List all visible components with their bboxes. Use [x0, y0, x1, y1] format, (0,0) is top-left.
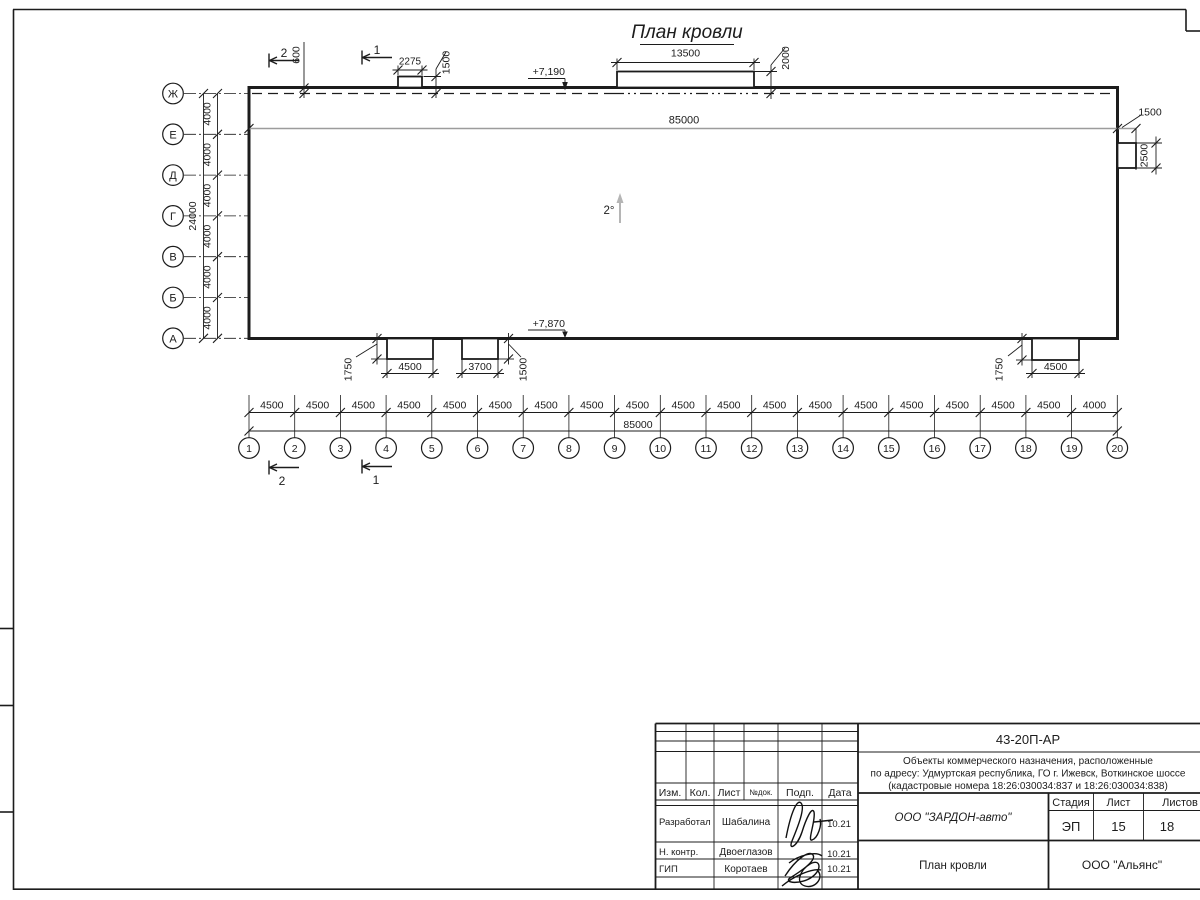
signature-developed — [786, 802, 833, 846]
column-step-dim-label: 4500 — [900, 400, 924, 412]
elevation-bottom: +7,870 — [528, 318, 568, 338]
row-step-dim-label: 4000 — [202, 102, 214, 126]
col-header-izm: Изм. — [659, 787, 682, 799]
column-step-dim-label: 4500 — [717, 400, 741, 412]
column-axis-label: 14 — [837, 443, 849, 455]
column-axis-label: 18 — [1020, 443, 1032, 455]
column-axis-label: 12 — [746, 443, 758, 455]
building: 85000 — [245, 88, 1137, 339]
row-axis-label: А — [169, 333, 177, 345]
section-1-top-label: 1 — [374, 43, 381, 57]
doc-number: 43-20П-АР — [996, 732, 1060, 747]
project-description-line1: Объекты коммерческого назначения, распол… — [903, 755, 1153, 767]
dim-inner-85000: 85000 — [669, 115, 700, 127]
row-axis-label: Д — [169, 170, 177, 182]
row-step-dim-label: 4000 — [202, 184, 214, 208]
column-axis-label: 17 — [974, 443, 986, 455]
section-1-bottom-label: 1 — [373, 473, 380, 487]
name-developed: Шабалина — [722, 816, 771, 828]
column-dim-chain: 85000 — [245, 413, 1122, 436]
row-step-dim-label: 4000 — [202, 265, 214, 289]
column-step-dim-label: 4500 — [626, 400, 650, 412]
column-step-dim-label: 4500 — [443, 400, 467, 412]
column-step-dim-label: 4500 — [397, 400, 421, 412]
name-gip: Коротаев — [724, 864, 767, 875]
dim-2500-label: 2500 — [1139, 144, 1151, 168]
column-step-dim-label: 4500 — [946, 400, 970, 412]
row-axis-label: Ж — [168, 89, 178, 101]
right-protrusion: 1500 2500 — [1118, 107, 1163, 175]
col-header-podp: Подп. — [786, 787, 814, 799]
column-axis-label: 10 — [654, 443, 666, 455]
dim-3700-label: 3700 — [468, 361, 492, 373]
column-step-dim-label: 4000 — [1083, 400, 1107, 412]
column-axis-label: 16 — [929, 443, 941, 455]
section-1-bottom — [362, 460, 392, 474]
column-axes: 1234567891011121314151617181920450045004… — [239, 395, 1128, 458]
row-axes: ЖЕДГВБА400040004000400040004000 — [163, 83, 249, 348]
elev-top-label: +7,190 — [533, 66, 566, 78]
stage-label: Стадия — [1052, 797, 1090, 809]
column-step-dim-label: 4500 — [991, 400, 1015, 412]
top-small-protrusion: 2275 1500 — [393, 51, 453, 98]
column-axis-label: 8 — [566, 443, 572, 455]
column-step-dim-label: 4500 — [534, 400, 558, 412]
role-gip: ГИП — [659, 864, 678, 875]
date-gip: 10.21 — [827, 864, 851, 875]
column-step-dim-label: 4500 — [854, 400, 878, 412]
sheets-value: 18 — [1160, 819, 1174, 834]
column-axis-label: 7 — [520, 443, 526, 455]
dim-4500-b3-label: 4500 — [1044, 361, 1068, 373]
contractor-name: ООО "Альянс" — [1082, 858, 1162, 872]
stage-value: ЭП — [1062, 819, 1081, 834]
column-axis-label: 11 — [701, 443, 712, 455]
dim-1750-b3-label: 1750 — [994, 358, 1006, 382]
dim-13500-label: 13500 — [671, 48, 700, 60]
dim-2000-label: 2000 — [780, 46, 792, 70]
name-ncontrol: Двоеглазов — [719, 847, 772, 858]
sheet-value: 15 — [1111, 819, 1125, 834]
column-axis-label: 1 — [246, 443, 252, 455]
row-step-dim-label: 4000 — [202, 306, 214, 330]
dim-parapet-offset: 600 — [291, 42, 309, 98]
column-step-dim-label: 4500 — [671, 400, 695, 412]
section-2-top-label: 2 — [281, 46, 288, 60]
column-axis-label: 6 — [475, 443, 481, 455]
bottom-protrusion-2: 3700 1500 — [456, 333, 530, 381]
sheet-label: Лист — [1107, 797, 1131, 809]
dim-2275-label: 2275 — [399, 57, 422, 68]
column-axis-label: 5 — [429, 443, 435, 455]
row-axis-label: Б — [169, 293, 176, 305]
role-developed: Разработал — [659, 817, 711, 828]
column-axis-label: 20 — [1111, 443, 1123, 455]
column-step-dim-label: 4500 — [260, 400, 284, 412]
col-header-data: Дата — [828, 787, 851, 799]
column-axis-label: 2 — [292, 443, 298, 455]
slope-annotation: 2° — [604, 193, 624, 223]
column-step-dim-label: 4500 — [489, 400, 513, 412]
role-ncontrol: Н. контр. — [659, 847, 698, 858]
drawing-sheet: План кровли 85000 2° +7,190 +7,870 600 — [0, 0, 1200, 900]
dim-1500-right-label: 1500 — [1138, 107, 1162, 119]
row-axis-label: В — [169, 252, 176, 264]
slope-arrow-icon — [617, 193, 624, 203]
sheet-title: План кровли — [919, 860, 987, 872]
bottom-protrusion-3: 4500 1750 — [994, 333, 1086, 381]
sheets-label: Листов — [1162, 797, 1198, 809]
roof-plan-drawing: План кровли 85000 2° +7,190 +7,870 600 — [0, 0, 1200, 900]
dim-1750-b1-label: 1750 — [343, 358, 355, 382]
column-step-dim-label: 4500 — [809, 400, 833, 412]
column-axis-label: 3 — [337, 443, 343, 455]
company-name: ООО "ЗАРДОН-авто" — [895, 812, 1013, 824]
dim-4500-b1-label: 4500 — [398, 361, 422, 373]
elev-bottom-label: +7,870 — [533, 318, 566, 330]
top-large-protrusion: 13500 2000 — [611, 46, 792, 99]
bottom-protrusion-1: 4500 1750 — [343, 333, 440, 381]
date-ncontrol: 10.21 — [827, 849, 851, 860]
row-step-dim-label: 4000 — [202, 143, 214, 167]
dim-1500-b2-label: 1500 — [518, 358, 530, 382]
dim-total-85000-label: 85000 — [623, 419, 652, 431]
column-axis-label: 13 — [792, 443, 804, 455]
title-block: 43-20П-АР Объекты коммерческого назначен… — [656, 724, 1200, 890]
column-step-dim-label: 4500 — [1037, 400, 1061, 412]
project-description-line2: по адресу: Удмуртская республика, ГО г. … — [871, 768, 1186, 780]
project-description-line3: (кадастровые номера 18:26:030034:837 и 1… — [888, 781, 1168, 792]
column-step-dim-label: 4500 — [763, 400, 787, 412]
col-header-list: Лист — [718, 787, 741, 799]
column-axis-label: 19 — [1066, 443, 1078, 455]
col-header-ndok: №док. — [749, 788, 772, 797]
column-axis-label: 15 — [883, 443, 895, 455]
column-axis-label: 9 — [612, 443, 618, 455]
column-axis-label: 4 — [383, 443, 389, 455]
slope-label: 2° — [604, 205, 615, 217]
column-step-dim-label: 4500 — [306, 400, 330, 412]
row-axis-label: Е — [169, 129, 176, 141]
section-2-bottom — [269, 461, 299, 475]
column-step-dim-label: 4500 — [580, 400, 604, 412]
col-header-kol: Кол. — [690, 787, 711, 799]
dim-1500-top-label: 1500 — [441, 51, 453, 75]
column-step-dim-label: 4500 — [352, 400, 376, 412]
row-axis-label: Г — [170, 211, 176, 223]
section-2-bottom-label: 2 — [279, 474, 286, 488]
drawing-title: План кровли — [631, 22, 743, 43]
row-step-dim-label: 4000 — [202, 224, 214, 248]
